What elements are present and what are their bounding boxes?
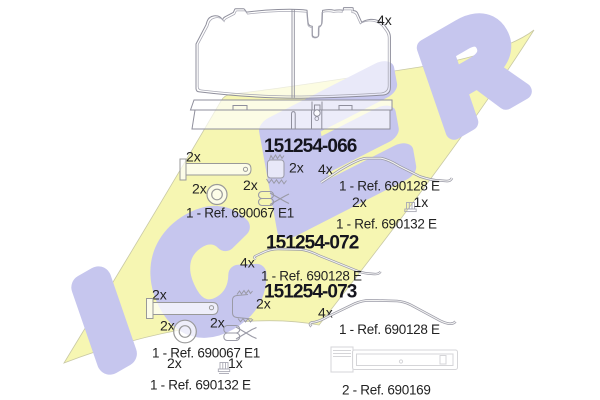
svg-text:4x: 4x <box>240 255 255 271</box>
svg-text:2x: 2x <box>243 177 258 193</box>
svg-text:2x: 2x <box>256 296 271 312</box>
svg-text:1 - Ref. 690128 E: 1 - Ref. 690128 E <box>339 179 440 194</box>
svg-text:4x: 4x <box>318 161 333 177</box>
svg-text:2x: 2x <box>289 160 304 176</box>
svg-text:2x: 2x <box>167 355 182 371</box>
svg-text:1 - Ref. 690132 E: 1 - Ref. 690132 E <box>150 378 251 393</box>
svg-text:151254-072: 151254-072 <box>266 233 359 254</box>
svg-text:2x: 2x <box>152 287 167 303</box>
svg-text:2x: 2x <box>210 315 225 331</box>
svg-text:151254-066: 151254-066 <box>264 136 357 157</box>
svg-text:1 - Ref. 690132 E: 1 - Ref. 690132 E <box>336 217 437 232</box>
svg-text:2x: 2x <box>352 194 367 210</box>
svg-text:1 - Ref. 690128 E: 1 - Ref. 690128 E <box>339 322 440 337</box>
svg-text:2x: 2x <box>192 181 207 197</box>
svg-text:151254-073: 151254-073 <box>264 282 357 303</box>
svg-text:1x: 1x <box>414 194 429 210</box>
svg-text:2x: 2x <box>160 318 175 334</box>
svg-text:1 - Ref. 690067 E1: 1 - Ref. 690067 E1 <box>186 206 294 221</box>
svg-text:2 - Ref. 690169: 2 - Ref. 690169 <box>342 383 431 398</box>
svg-text:1x: 1x <box>228 355 243 371</box>
svg-text:2x: 2x <box>186 149 201 165</box>
svg-text:4x: 4x <box>377 12 392 28</box>
